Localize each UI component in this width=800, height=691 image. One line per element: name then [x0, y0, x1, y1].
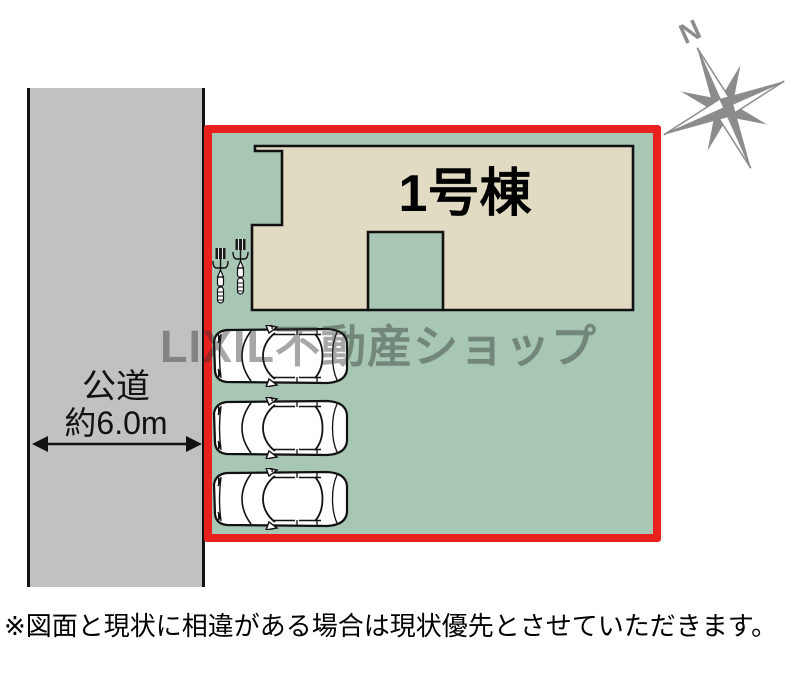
bicycle-icon: [211, 247, 230, 304]
road-name-label: 公道: [30, 369, 202, 406]
disclaimer-text: ※図面と現状に相違がある場合は現状優先とさせていただきます。: [4, 610, 798, 642]
compass-rose: N: [650, 8, 800, 198]
north-label: N: [674, 13, 705, 50]
bicycle-icon: [231, 238, 250, 295]
road-width-arrow: [31, 432, 203, 456]
car-icon: [211, 325, 352, 387]
site-plan: 公道 約6.0m 1号棟 LIXIL不動産ショップ: [0, 0, 800, 691]
road-strip: 公道 約6.0m: [27, 88, 205, 587]
car-icon: [211, 397, 352, 459]
car-icon: [211, 468, 352, 530]
building-name-label: 1号棟: [340, 164, 590, 224]
